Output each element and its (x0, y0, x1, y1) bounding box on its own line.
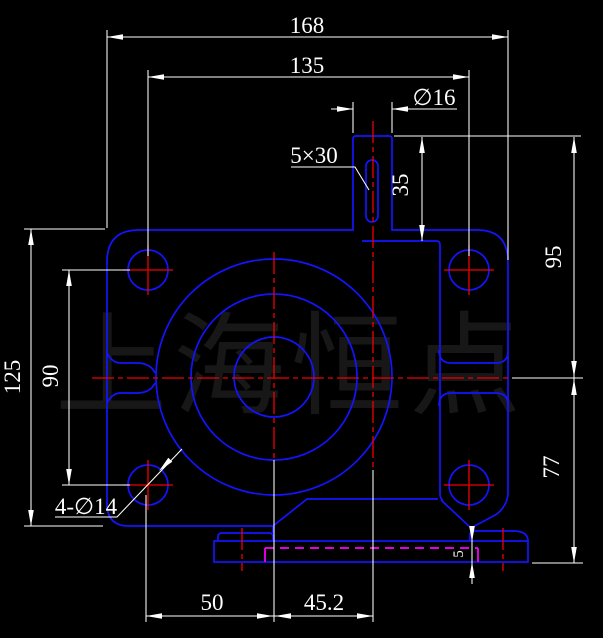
base-plate (214, 531, 528, 562)
body-outline (107, 136, 508, 528)
arrow-135-left (148, 74, 164, 80)
cad-drawing-page: 上海恒点 (0, 0, 603, 638)
dimension-168: 168 (107, 13, 508, 40)
dimension-slot-5x30: 5×30 (290, 143, 369, 190)
dimension-5: 5 (451, 526, 475, 584)
tab-slot (366, 160, 378, 222)
dim-168-label: 168 (290, 13, 325, 38)
dim-125-label: 125 (0, 360, 25, 395)
arrow-90-top (66, 270, 72, 286)
base-pad-right (470, 531, 528, 541)
arrow-45-right (357, 613, 373, 619)
arrow-77-bottom (571, 547, 577, 563)
arrow-77-top (571, 379, 577, 395)
arrow-168-left (107, 34, 123, 40)
dimension-95-77: 95 77 (539, 137, 577, 563)
arrow-dia16-left (337, 106, 353, 112)
arrow-45-left (275, 613, 291, 619)
arrow-125-top (28, 229, 34, 245)
base-pad-left (218, 533, 273, 541)
dimension-135: 135 (148, 53, 469, 80)
left-neck-bottom (107, 383, 155, 403)
crosshair-hole-br (444, 460, 494, 510)
arrow-90-bottom (66, 469, 72, 485)
dim-90-label: 90 (38, 365, 63, 388)
arrow-dia16-right (392, 106, 408, 112)
dimension-90: 90 (38, 270, 72, 485)
dimension-50-45.2: 50 45.2 (146, 590, 373, 619)
right-neck-bottom (439, 393, 508, 406)
dim-50-label: 50 (201, 590, 224, 615)
dim-5-label: 5 (451, 550, 467, 558)
arrow-125-bottom (28, 510, 34, 526)
dim-95-label: 95 (541, 246, 566, 269)
arrow-168-right (492, 34, 508, 40)
right-flange-edge (362, 241, 443, 501)
dim-dia16-label: ∅16 (412, 85, 455, 110)
arrow-5-bottom (469, 562, 475, 578)
arrow-35-bottom (419, 225, 425, 241)
arrow-4dia14 (159, 458, 172, 471)
arrow-95-top (571, 137, 577, 153)
cad-drawing-canvas: 168 135 ∅16 5×30 35 (0, 0, 603, 638)
leader-5x30 (291, 167, 369, 190)
right-neck-top (439, 350, 508, 363)
dim-77-label: 77 (539, 456, 564, 479)
dim-45-label: 45.2 (304, 590, 344, 615)
dim-4dia14-label: 4-∅14 (55, 494, 118, 519)
dimension-125: 125 (0, 229, 34, 526)
arrow-95-bottom (571, 361, 577, 377)
arrow-135-right (453, 74, 469, 80)
left-neck-top (107, 353, 155, 373)
arrow-35-top (419, 137, 425, 153)
arrow-50-right (257, 613, 273, 619)
arrow-50-left (146, 613, 162, 619)
dimension-dia16: ∅16 (331, 85, 457, 112)
mounting-tab (366, 160, 378, 222)
dimension-35: 35 (388, 137, 425, 241)
base-plate-body (214, 541, 528, 562)
dim-5x30-label: 5×30 (290, 143, 337, 168)
hidden-slot (265, 548, 478, 562)
part-body (107, 136, 508, 533)
dim-35-label: 35 (388, 174, 413, 197)
dim-135-label: 135 (290, 53, 325, 78)
dimension-4xdia14: 4-∅14 (55, 449, 182, 519)
